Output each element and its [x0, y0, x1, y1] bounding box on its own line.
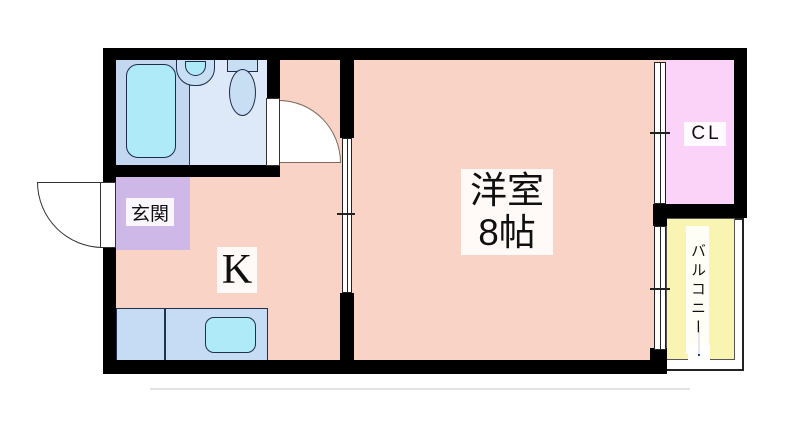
closet-label-text: CL: [691, 123, 721, 145]
wall-bathroom-bottom: [103, 165, 280, 177]
wall-bottom: [103, 360, 667, 374]
wall-balcony-stub-top: [653, 218, 667, 226]
wall-left-lower: [103, 248, 116, 374]
bottom-shadow: [150, 388, 690, 390]
entrance-door-arc-icon: [37, 182, 103, 248]
sliding-door-centerline: [347, 138, 348, 293]
bathroom-door-leaf: [266, 98, 280, 166]
wall-right: [734, 48, 747, 218]
entrance-door-leaf: [100, 182, 116, 248]
toilet-bowl: [229, 69, 256, 116]
kitchen-sink: [205, 317, 256, 353]
wall-partition-lower: [340, 293, 354, 360]
kitchen-label: K: [217, 247, 257, 293]
window-balcony-side-tick: [650, 288, 670, 290]
kitchen-label-text: K: [222, 246, 252, 294]
entrance-label-text: 玄関: [131, 199, 169, 226]
window-closet-side-tick: [650, 132, 670, 134]
wall-partition-upper: [340, 60, 354, 138]
wall-balcony-stub-bottom: [650, 348, 667, 374]
closet-label: CL: [684, 122, 726, 146]
bathtub: [126, 64, 176, 158]
entrance-label: 玄関: [126, 198, 174, 226]
wall-bathroom-right-upper: [267, 48, 280, 100]
main-room-size: 8帖: [478, 212, 536, 254]
wall-left-upper: [103, 48, 116, 182]
floor-plan: 玄関 K 洋室 8帖 CL バルコニー: [0, 0, 800, 431]
sliding-door-tick: [337, 213, 355, 215]
main-room-label: 洋室 8帖: [461, 169, 553, 255]
wall-closet-bottom: [653, 204, 747, 218]
kitchen-counter-divider: [164, 308, 166, 361]
balcony-label: バルコニー: [686, 226, 709, 354]
balcony-label-text: バルコニー: [687, 243, 708, 338]
wall-top: [103, 48, 747, 60]
main-room-name: 洋室: [470, 170, 544, 212]
